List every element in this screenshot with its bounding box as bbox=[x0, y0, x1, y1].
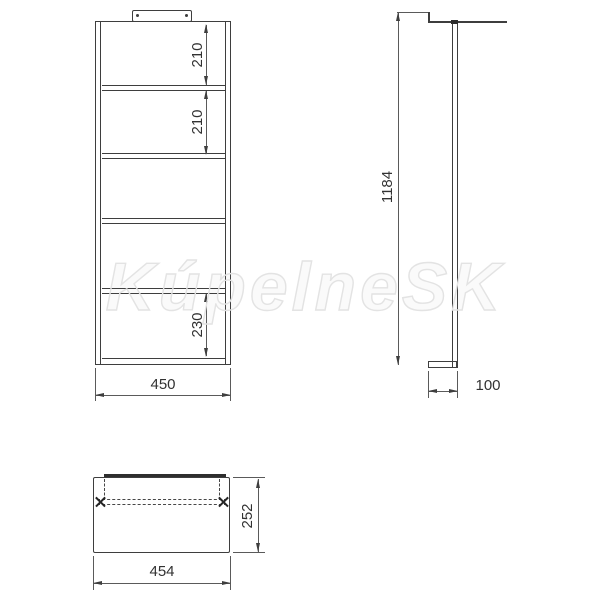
frame-outline bbox=[95, 21, 231, 365]
frame-rail-inner-right bbox=[225, 22, 226, 364]
arrowhead bbox=[204, 24, 208, 33]
dimension-line-210-mid bbox=[206, 91, 207, 154]
dimension-line-450 bbox=[95, 395, 231, 396]
extension-line bbox=[428, 371, 429, 398]
hidden-frame-line bbox=[97, 504, 227, 505]
arrowhead bbox=[204, 293, 208, 302]
arrowhead bbox=[256, 479, 260, 488]
arrowhead bbox=[95, 393, 104, 397]
dimension-label-1184: 1184 bbox=[380, 162, 396, 212]
dimension-line-252 bbox=[258, 479, 259, 552]
shelf-line bbox=[102, 85, 225, 86]
plan-outline bbox=[93, 477, 230, 553]
dimension-line-1184 bbox=[398, 13, 399, 365]
dimension-label-100: 100 bbox=[468, 378, 508, 394]
dimension-label-210-mid: 210 bbox=[190, 102, 206, 142]
arrowhead bbox=[449, 389, 458, 393]
bottom-foot bbox=[428, 361, 457, 368]
arrowhead bbox=[256, 543, 260, 552]
bracket-screw-hole bbox=[136, 14, 139, 17]
tube-end-plug bbox=[451, 20, 458, 24]
arrowhead bbox=[222, 393, 231, 397]
dimension-label-454: 454 bbox=[93, 564, 231, 580]
dimension-label-230: 230 bbox=[190, 305, 206, 345]
technical-drawing-canvas: 210 210 230 450 1184 bbox=[0, 0, 600, 600]
arrowhead bbox=[428, 389, 437, 393]
arrowhead bbox=[93, 581, 102, 585]
arrowhead bbox=[204, 90, 208, 99]
top-shelf-edge bbox=[428, 21, 507, 23]
bracket-screw-hole bbox=[185, 14, 188, 17]
frame-tube-line bbox=[452, 23, 453, 368]
extension-line bbox=[397, 12, 429, 13]
shelf-line bbox=[102, 288, 225, 289]
extension-line bbox=[457, 371, 458, 398]
shelf-line bbox=[102, 218, 225, 219]
dimension-line-230 bbox=[206, 294, 207, 356]
shelf-line bbox=[102, 223, 225, 224]
arrowhead bbox=[204, 348, 208, 357]
dimension-label-252: 252 bbox=[240, 495, 256, 537]
arrowhead bbox=[396, 356, 400, 365]
extension-line bbox=[233, 552, 265, 553]
frame-rail-inner-left bbox=[100, 22, 101, 364]
arrowhead bbox=[204, 76, 208, 85]
bracket-bar-edge bbox=[104, 474, 226, 477]
arrowhead bbox=[222, 581, 231, 585]
arrowhead bbox=[204, 146, 208, 155]
dimension-label-210-top: 210 bbox=[190, 35, 206, 75]
arrowhead bbox=[396, 12, 400, 21]
tube-section-cross bbox=[218, 497, 228, 507]
dimension-label-450: 450 bbox=[95, 377, 231, 393]
bottom-shelf-line bbox=[102, 358, 225, 359]
frame-tube-line bbox=[457, 23, 458, 368]
hidden-frame-line bbox=[97, 499, 227, 500]
dimension-line-454 bbox=[93, 583, 231, 584]
extension-line bbox=[233, 477, 265, 478]
tube-section-cross bbox=[95, 497, 105, 507]
shelf-line bbox=[102, 158, 225, 159]
